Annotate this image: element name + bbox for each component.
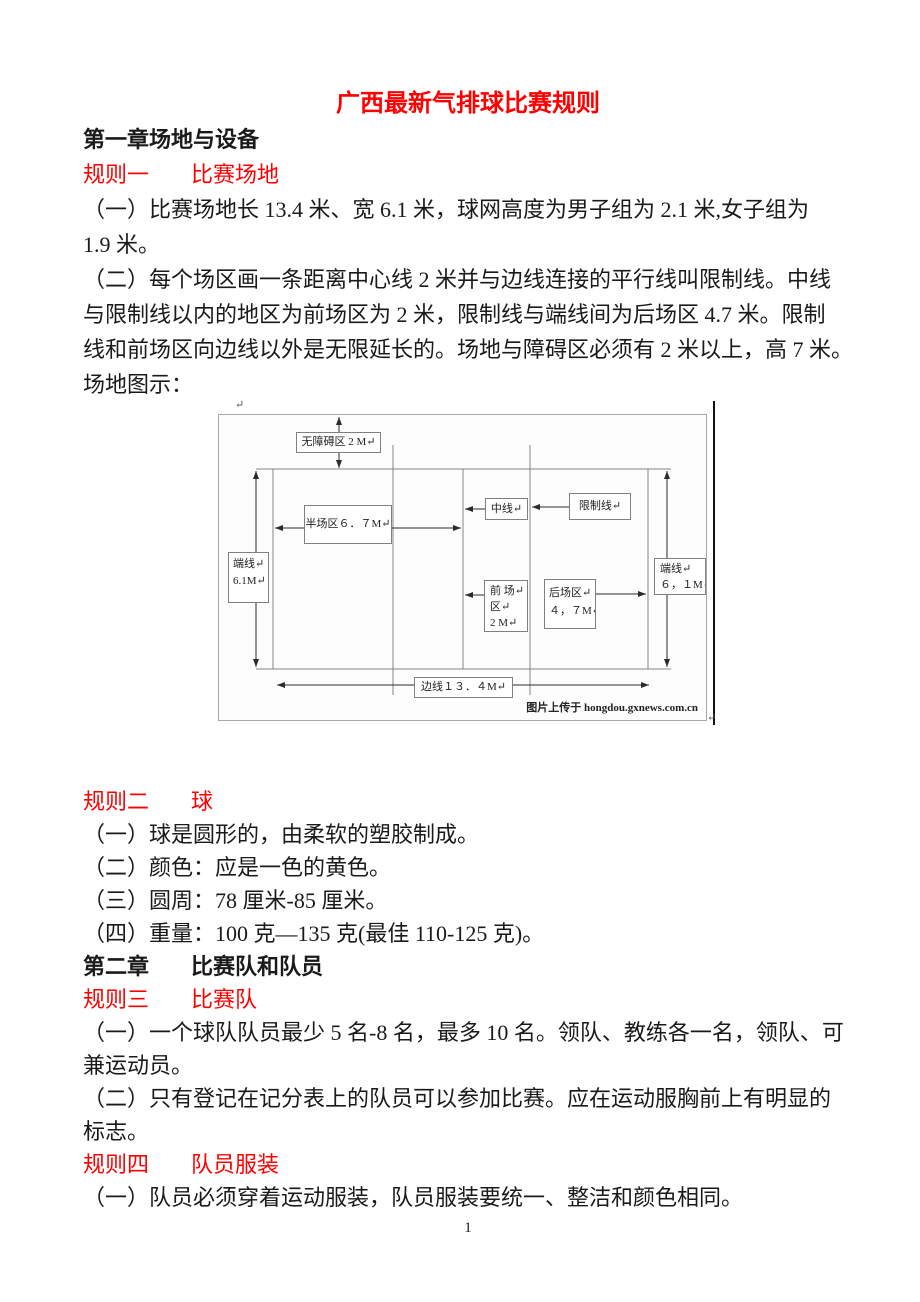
endline-left-line1: 端线↵ xyxy=(233,556,268,573)
rule3-label: 规则三 xyxy=(83,987,149,1012)
court-lines-svg xyxy=(219,415,706,720)
paragraph-line: （二）颜色：应是一色的黄色。 xyxy=(83,851,853,884)
paragraph-line: （三）圆周：78 厘米-85 厘米。 xyxy=(83,884,853,917)
back-zone-label: 后场区↵ ４，７M↵ xyxy=(544,579,596,629)
front-zone-line3: 2 M↵ xyxy=(490,615,527,631)
rule1-title: 比赛场地 xyxy=(191,162,279,187)
chapter1-heading: 第一章场地与设备 xyxy=(83,122,853,157)
paragraph-line: （二）只有登记在记分表上的队员可以参加比赛。应在运动服胸前上有明显的 xyxy=(83,1082,853,1115)
paragraph-line: 1.9 米。 xyxy=(83,227,853,262)
endline-right-line1: 端线↵ xyxy=(660,561,705,577)
paragraph-line: 线和前场区向边线以外是无限延长的。场地与障碍区必须有 2 米以上，高 7 米。 xyxy=(83,332,853,367)
rule4-title: 队员服装 xyxy=(191,1152,279,1177)
paragraph-line: （一）比赛场地长 13.4 米、宽 6.1 米，球网高度为男子组为 2.1 米,… xyxy=(83,192,853,227)
half-court-label: 半场区６．７M↵ xyxy=(304,505,392,544)
back-zone-line2: ４，７M↵ xyxy=(549,602,595,620)
endline-left-line2: 6.1M↵ xyxy=(233,573,268,590)
no-obstacle-zone-label: 无障碍区 2 M↵ xyxy=(296,432,381,453)
back-zone-line1: 后场区↵ xyxy=(549,584,595,602)
rule2-title: 球 xyxy=(191,789,213,814)
paragraph-line: （一）球是圆形的，由柔软的塑胶制成。 xyxy=(83,818,853,851)
paragraph-line: （四）重量：100 克—135 克(最佳 110-125 克)。 xyxy=(83,917,853,950)
paragraph-line: 标志。 xyxy=(83,1115,853,1148)
rule2-label: 规则二 xyxy=(83,789,149,814)
front-zone-label: 前 场↵ 区↵ 2 M↵ xyxy=(484,580,528,632)
chapter2-heading: 第二章比赛队和队员 xyxy=(83,950,853,983)
court-structure-lines xyxy=(256,445,671,695)
image-source-caption: 图片上传于 hongdou.gxnews.com.cn xyxy=(526,699,698,715)
paragraph-line: （一）一个球队队员最少 5 名-8 名，最多 10 名。领队、教练各一名，领队、… xyxy=(83,1016,853,1049)
page-number: 1 xyxy=(83,1218,853,1238)
paragraph-line: 兼运动员。 xyxy=(83,1049,853,1082)
rule1-label: 规则一 xyxy=(83,162,149,187)
paragraph-line: （一）队员必须穿着运动服装，队员服装要统一、整洁和颜色相同。 xyxy=(83,1181,853,1214)
rule4-heading: 规则四队员服装 xyxy=(83,1148,853,1181)
sideline-label: 边线１３．４M↵ xyxy=(414,677,513,698)
measurement-arrows xyxy=(256,417,667,685)
chapter2-label: 第二章 xyxy=(83,954,149,979)
paragraph-line: 场地图示： xyxy=(83,367,853,402)
restriction-line-label: 限制线↵ xyxy=(569,493,631,520)
paragraph-return-mark: ↵ xyxy=(707,713,716,724)
paragraph-return-mark: ↵ xyxy=(235,400,244,411)
paragraph-line: 与限制线以内的地区为前场区为 2 米，限制线与端线间为后场区 4.7 米。限制 xyxy=(83,297,853,332)
document-page: 广西最新气排球比赛规则 第一章场地与设备 规则一比赛场地 （一）比赛场地长 13… xyxy=(0,0,920,1302)
chapter2-title: 比赛队和队员 xyxy=(191,954,323,979)
text-column: 广西最新气排球比赛规则 第一章场地与设备 规则一比赛场地 （一）比赛场地长 13… xyxy=(0,0,920,1238)
center-line-label: 中线↵ xyxy=(485,498,528,520)
rule4-label: 规则四 xyxy=(83,1152,149,1177)
front-zone-line1: 前 场↵ xyxy=(490,583,527,599)
document-title: 广西最新气排球比赛规则 xyxy=(83,86,853,122)
endline-left-label: 端线↵ 6.1M↵ xyxy=(228,552,269,603)
court-diagram: ↵ xyxy=(218,414,707,721)
rule1-heading: 规则一比赛场地 xyxy=(83,157,853,192)
front-zone-line2: 区↵ xyxy=(490,599,527,615)
page-edge-rule xyxy=(713,401,715,725)
rule3-title: 比赛队 xyxy=(191,987,257,1012)
endline-right-label: 端线↵ ６，１M↵ xyxy=(654,558,706,595)
rule3-heading: 规则三比赛队 xyxy=(83,983,853,1016)
rule2-heading: 规则二球 xyxy=(83,785,853,818)
paragraph-line: （二）每个场区画一条距离中心线 2 米并与边线连接的平行线叫限制线。中线 xyxy=(83,262,853,297)
endline-right-line2: ６，１M↵ xyxy=(660,577,705,593)
